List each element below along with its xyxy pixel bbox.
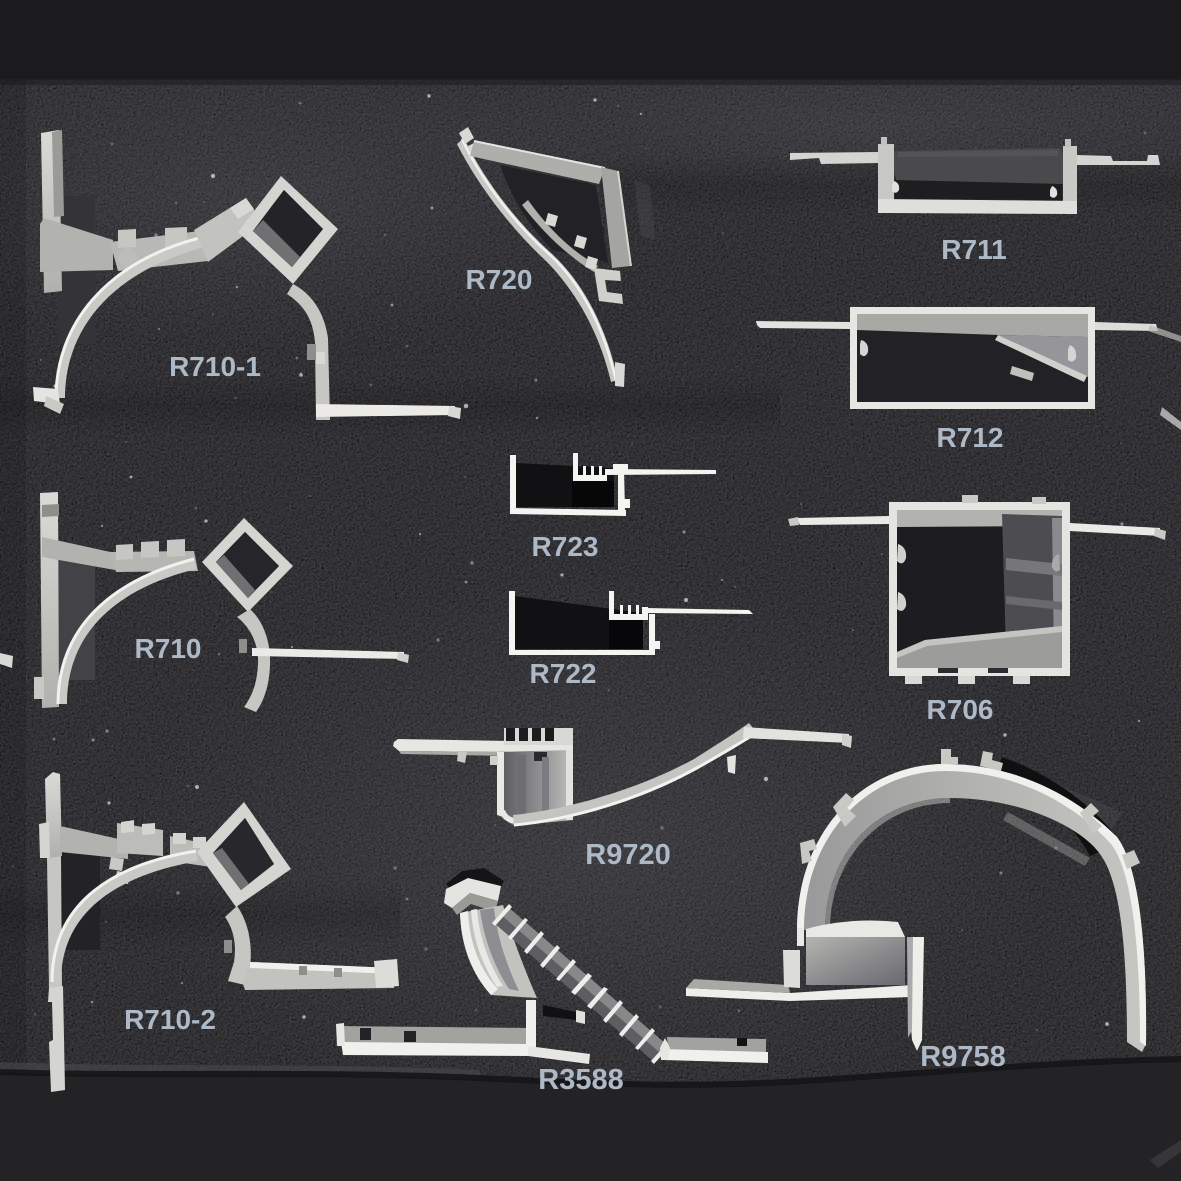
svg-text:R711: R711 xyxy=(941,234,1006,265)
svg-text:R722: R722 xyxy=(530,658,597,689)
svg-text:R710-1: R710-1 xyxy=(169,351,261,382)
svg-text:R720: R720 xyxy=(466,264,533,295)
svg-text:R712: R712 xyxy=(937,422,1004,453)
svg-text:R9758: R9758 xyxy=(920,1041,1005,1073)
svg-text:R3588: R3588 xyxy=(538,1064,623,1096)
svg-text:R9720: R9720 xyxy=(585,839,670,871)
svg-text:R706: R706 xyxy=(927,694,994,725)
svg-text:R710: R710 xyxy=(135,633,202,664)
svg-text:R723: R723 xyxy=(532,531,599,562)
svg-text:R710-2: R710-2 xyxy=(124,1004,216,1035)
